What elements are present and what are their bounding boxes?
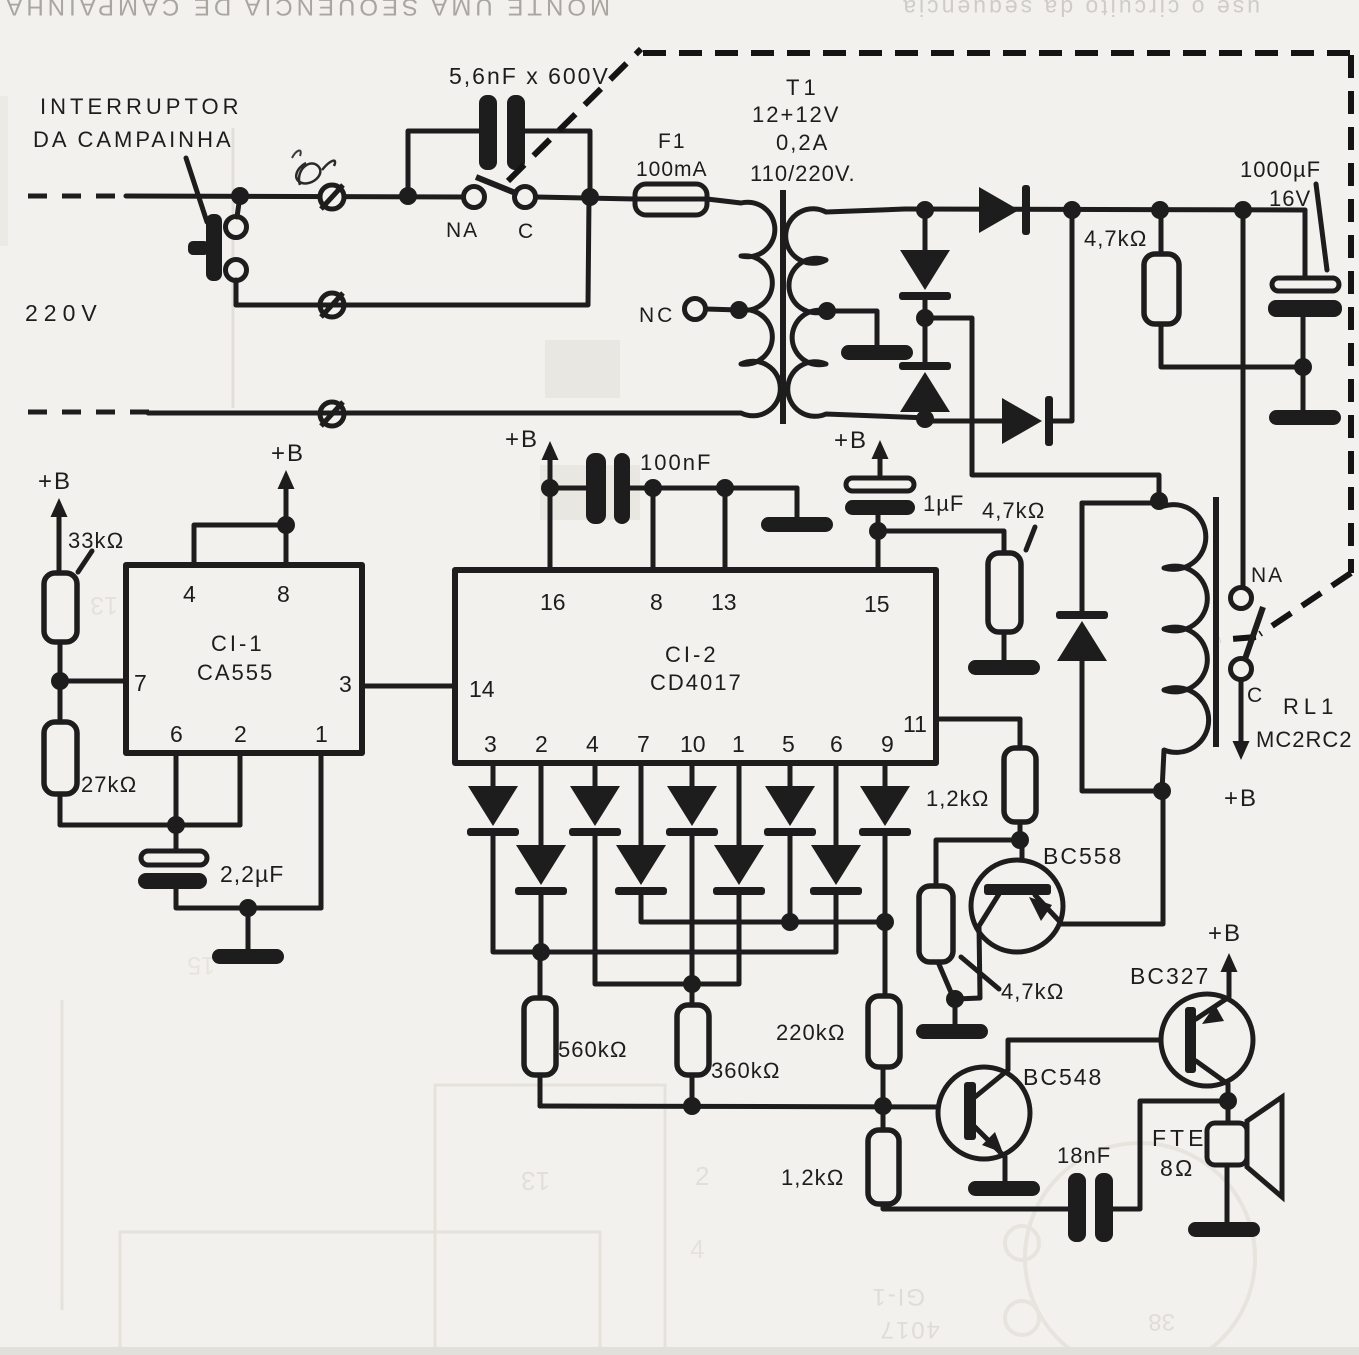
svg-text:4,7kΩ: 4,7kΩ bbox=[1084, 226, 1147, 251]
svg-text:FTE: FTE bbox=[1152, 1125, 1207, 1151]
svg-text:F1: F1 bbox=[658, 130, 687, 153]
svg-text:10: 10 bbox=[680, 731, 706, 757]
svg-text:1,2kΩ: 1,2kΩ bbox=[781, 1165, 844, 1190]
svg-text:14: 14 bbox=[469, 676, 495, 702]
svg-text:8Ω: 8Ω bbox=[1160, 1155, 1194, 1181]
svg-text:1: 1 bbox=[315, 721, 328, 747]
svg-text:220V: 220V bbox=[25, 300, 103, 326]
svg-text:7: 7 bbox=[134, 670, 147, 696]
svg-text:MC2RC2: MC2RC2 bbox=[1256, 727, 1352, 752]
svg-text:9: 9 bbox=[881, 731, 894, 757]
svg-text:360kΩ: 360kΩ bbox=[711, 1058, 781, 1083]
svg-text:2: 2 bbox=[535, 731, 548, 757]
svg-text:3: 3 bbox=[484, 731, 497, 757]
svg-text:1000µF: 1000µF bbox=[1240, 157, 1321, 182]
svg-text:560kΩ: 560kΩ bbox=[558, 1037, 628, 1062]
svg-text:13: 13 bbox=[711, 589, 737, 615]
svg-text:5,6nF x 600V: 5,6nF x 600V bbox=[449, 63, 610, 89]
svg-text:+B: +B bbox=[271, 440, 305, 467]
svg-text:0,2A: 0,2A bbox=[776, 130, 829, 155]
svg-text:1: 1 bbox=[732, 731, 745, 757]
svg-text:220kΩ: 220kΩ bbox=[776, 1020, 846, 1045]
svg-text:CI-2: CI-2 bbox=[665, 642, 719, 667]
svg-text:6: 6 bbox=[830, 731, 843, 757]
svg-text:16: 16 bbox=[540, 589, 566, 615]
svg-text:2: 2 bbox=[234, 721, 247, 747]
svg-text:4,7kΩ: 4,7kΩ bbox=[1001, 979, 1064, 1004]
svg-text:DA CAMPAINHA: DA CAMPAINHA bbox=[33, 127, 234, 152]
svg-text:16V: 16V bbox=[1269, 186, 1311, 211]
svg-text:4,7kΩ: 4,7kΩ bbox=[982, 498, 1045, 523]
svg-text:CA555: CA555 bbox=[197, 660, 274, 685]
svg-text:CD4017: CD4017 bbox=[650, 670, 743, 695]
svg-text:2,2µF: 2,2µF bbox=[220, 861, 284, 887]
svg-text:+B: +B bbox=[834, 427, 868, 454]
svg-text:15: 15 bbox=[187, 951, 215, 979]
svg-text:7: 7 bbox=[637, 731, 650, 757]
svg-text:100nF: 100nF bbox=[640, 450, 712, 475]
svg-text:INTERRUPTOR: INTERRUPTOR bbox=[40, 94, 243, 119]
svg-text:NC: NC bbox=[639, 304, 675, 327]
svg-text:100mA: 100mA bbox=[636, 158, 708, 181]
svg-text:12+12V: 12+12V bbox=[752, 102, 840, 127]
svg-text:T1: T1 bbox=[786, 75, 820, 100]
svg-text:13: 13 bbox=[521, 1166, 550, 1196]
svg-text:33kΩ: 33kΩ bbox=[68, 528, 124, 553]
svg-text:38: 38 bbox=[1148, 1308, 1175, 1335]
svg-text:5: 5 bbox=[782, 731, 795, 757]
svg-text:110/220V.: 110/220V. bbox=[750, 161, 856, 186]
svg-text:CI-1: CI-1 bbox=[211, 631, 265, 656]
svg-text:27kΩ: 27kΩ bbox=[81, 772, 137, 797]
svg-text:MONTE UMA SEQUENCIA DE CAMPAIN: MONTE UMA SEQUENCIA DE CAMPAINHA bbox=[2, 0, 610, 20]
svg-text:C: C bbox=[1247, 684, 1262, 707]
svg-text:GI-1: GI-1 bbox=[870, 1283, 925, 1310]
svg-text:6: 6 bbox=[170, 721, 183, 747]
svg-text:1µF: 1µF bbox=[923, 491, 964, 516]
svg-text:RL1: RL1 bbox=[1283, 694, 1338, 719]
svg-text:2: 2 bbox=[695, 1161, 709, 1191]
svg-text:1,2kΩ: 1,2kΩ bbox=[926, 786, 989, 811]
svg-text:3: 3 bbox=[339, 671, 352, 697]
svg-text:8: 8 bbox=[277, 581, 290, 607]
svg-text:NA: NA bbox=[1251, 564, 1284, 587]
svg-text:18nF: 18nF bbox=[1057, 1143, 1111, 1168]
svg-text:BC327: BC327 bbox=[1130, 963, 1210, 989]
svg-text:+B: +B bbox=[1208, 920, 1242, 947]
svg-text:BC548: BC548 bbox=[1023, 1064, 1103, 1090]
svg-text:15: 15 bbox=[864, 591, 890, 617]
svg-text:11: 11 bbox=[903, 711, 927, 737]
svg-text:4017: 4017 bbox=[879, 1316, 940, 1343]
svg-text:BC558: BC558 bbox=[1043, 843, 1123, 869]
svg-text:4: 4 bbox=[690, 1234, 704, 1264]
svg-text:C: C bbox=[518, 220, 533, 243]
svg-text:+B: +B bbox=[1224, 785, 1258, 812]
svg-text:4: 4 bbox=[586, 731, 599, 757]
svg-text:8: 8 bbox=[650, 589, 663, 615]
svg-text:use o circuito da sequencia: use o circuito da sequencia bbox=[900, 0, 1260, 21]
svg-text:+B: +B bbox=[505, 426, 539, 453]
svg-text:4: 4 bbox=[183, 581, 196, 607]
svg-text:NA: NA bbox=[446, 219, 479, 242]
svg-text:+B: +B bbox=[38, 468, 72, 495]
svg-text:13: 13 bbox=[90, 591, 118, 619]
